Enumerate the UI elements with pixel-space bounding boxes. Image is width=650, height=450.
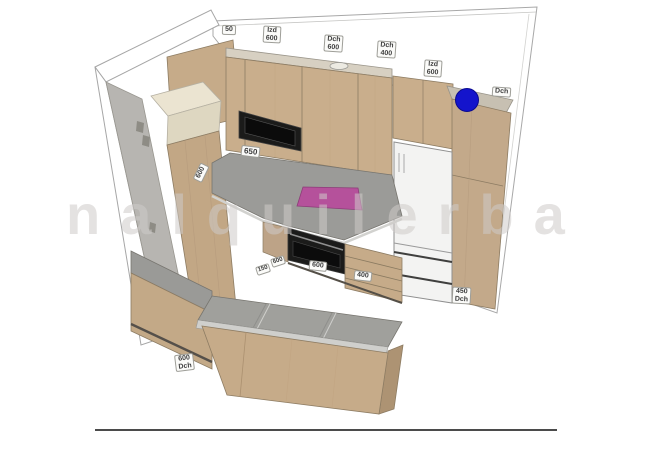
dim-label-base-2: 400 [354,270,373,281]
dim-label-wall-cab-1: Izd 600 [263,26,282,44]
outlet-icon [142,135,150,147]
base-filler-cabinet [263,222,288,262]
tall-cabinet-right [452,99,511,309]
dim-label-wall-cab-3: Dch 400 [376,40,396,58]
dim-label-base-left: 600 Dch [174,353,195,372]
footer-divider-line [95,429,557,431]
dim-label-tall-right: Dch [492,86,512,97]
dim-label-counter: 650 [240,145,261,158]
dim-label-base-right: 450 Dch [452,287,472,305]
dim-label-wall-cab-4: Izd 600 [423,59,442,77]
ceiling-vent-disc [330,63,348,70]
kitchen-plan-render: 50 Izd 600 Dch 600 Dch 400 Izd 600 Dch 6… [0,0,650,450]
blue-pin[interactable] [456,89,479,112]
dim-label-base-1: 600 [309,260,328,271]
dim-label-wall-cab-0: 50 [222,25,236,35]
induction-hob [297,187,362,210]
dim-label-wall-cab-2: Dch 600 [323,34,343,52]
outlet-icon [136,121,144,133]
kitchen-3d-scene [0,0,650,450]
